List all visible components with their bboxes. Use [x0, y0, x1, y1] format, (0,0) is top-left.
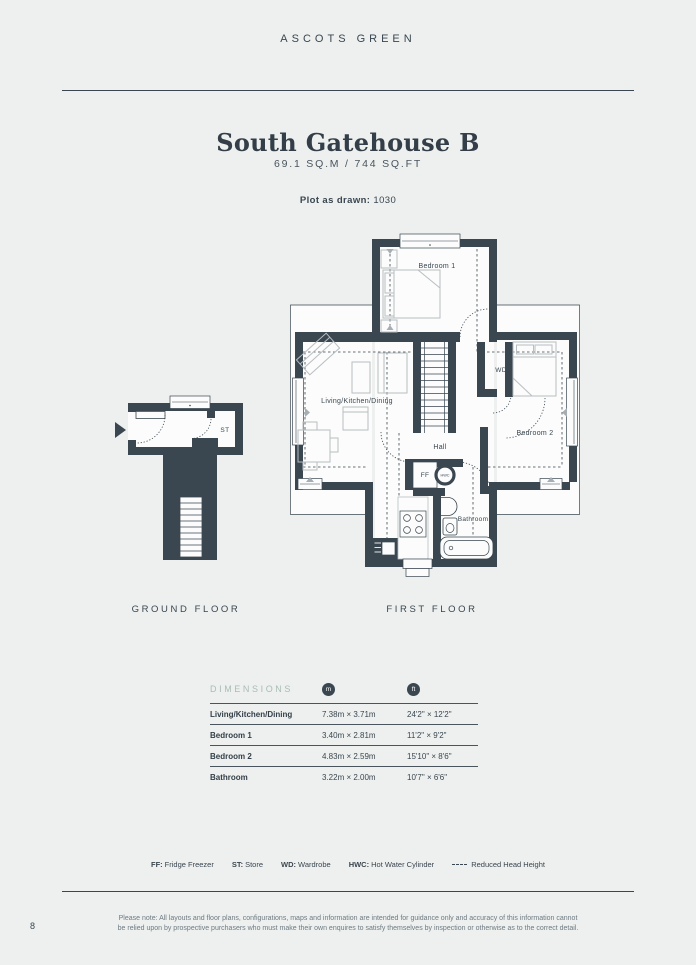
room-name: Bedroom 2	[210, 752, 322, 761]
ground-floor-label: GROUND FLOOR	[108, 604, 264, 615]
first-floor-label: FIRST FLOOR	[272, 604, 592, 615]
bedroom1-label: Bedroom 1	[419, 263, 456, 270]
disclaimer-note: Please note: All layouts and floor plans…	[0, 914, 696, 934]
legend-item-reduced-head-height: Reduced Head Height	[452, 860, 545, 869]
plan-legend: FF:Fridge Freezer ST:Store WD:Wardrobe H…	[0, 860, 696, 869]
legend-key: HWC:	[349, 860, 369, 869]
exterior-step	[403, 559, 432, 577]
legend-key: WD:	[281, 860, 296, 869]
toilet	[443, 518, 457, 535]
hwc-label: HWC	[440, 474, 449, 478]
dashed-line-icon	[452, 864, 467, 865]
legend-item: FF:Fridge Freezer	[151, 860, 214, 869]
metric-size: 3.40m × 2.81m	[322, 731, 407, 740]
plot-value: 1030	[373, 195, 396, 206]
room-name: Bathroom	[210, 773, 322, 782]
bathroom-label: Bathroom	[458, 516, 489, 523]
bath	[440, 537, 493, 559]
legend-value: Fridge Freezer	[165, 860, 214, 869]
page-title: South Gatehouse B	[0, 128, 696, 157]
first-floor-plan: Bedroom 1 Living/Kitchen/Dining Hall Bed…	[272, 228, 592, 580]
floor-area: 69.1 SQ.M / 744 SQ.FT	[0, 158, 696, 170]
metric-size: 4.83m × 2.59m	[322, 752, 407, 761]
legend-key: ST:	[232, 860, 243, 869]
metric-unit-icon: m	[322, 683, 335, 696]
legend-value: Reduced Head Height	[471, 860, 545, 869]
room-name: Bedroom 1	[210, 731, 322, 740]
development-brand: ASCOTS GREEN	[0, 33, 696, 45]
store-label: ST	[220, 427, 229, 434]
disclaimer-line: be relied upon by prospective purchasers…	[0, 924, 696, 934]
metric-size: 3.22m × 2.00m	[322, 773, 407, 782]
bottom-divider	[62, 891, 634, 892]
ground-floor-plan: ST	[108, 392, 264, 568]
imperial-size: 11'2" × 9'2"	[407, 731, 478, 740]
metric-size: 7.38m × 3.71m	[322, 710, 407, 719]
table-row: Living/Kitchen/Dining 7.38m × 3.71m 24'2…	[210, 703, 478, 724]
wardrobe-label: WD	[495, 367, 506, 374]
room-name: Living/Kitchen/Dining	[210, 710, 322, 719]
fridge-freezer-label: FF	[421, 472, 430, 479]
legend-value: Store	[245, 860, 263, 869]
living-label: Living/Kitchen/Dining	[321, 398, 393, 405]
dimensions-header: DIMENSIONS m ft	[210, 680, 478, 698]
legend-value: Hot Water Cylinder	[371, 860, 434, 869]
plot-label: Plot as drawn:	[300, 195, 371, 206]
entrance-arrow-icon	[115, 422, 126, 438]
imperial-size: 24'2" × 12'2"	[407, 710, 478, 719]
dimensions-heading: DIMENSIONS	[210, 684, 322, 694]
legend-item: HWC:Hot Water Cylinder	[349, 860, 435, 869]
ground-window	[170, 396, 210, 409]
imperial-size: 10'7" × 6'6"	[407, 773, 478, 782]
table-row: Bathroom 3.22m × 2.00m 10'7" × 6'6"	[210, 766, 478, 787]
legend-value: Wardrobe	[298, 860, 331, 869]
hob	[400, 511, 426, 537]
plot-number-line: Plot as drawn: 1030	[0, 195, 696, 206]
imperial-size: 15'10" × 8'6"	[407, 752, 478, 761]
basin	[441, 498, 457, 516]
legend-item: ST:Store	[232, 860, 263, 869]
top-divider	[62, 90, 634, 91]
legend-key: FF:	[151, 860, 163, 869]
page-number: 8	[30, 921, 35, 931]
bedroom2-label: Bedroom 2	[517, 430, 554, 437]
disclaimer-line: Please note: All layouts and floor plans…	[0, 914, 696, 924]
imperial-unit-icon: ft	[407, 683, 420, 696]
dimensions-table: DIMENSIONS m ft Living/Kitchen/Dining 7.…	[210, 680, 478, 787]
table-row: Bedroom 2 4.83m × 2.59m 15'10" × 8'6"	[210, 745, 478, 766]
legend-item: WD:Wardrobe	[281, 860, 331, 869]
ground-stairs	[180, 497, 202, 557]
hall-label: Hall	[433, 444, 446, 451]
table-row: Bedroom 1 3.40m × 2.81m 11'2" × 9'2"	[210, 724, 478, 745]
